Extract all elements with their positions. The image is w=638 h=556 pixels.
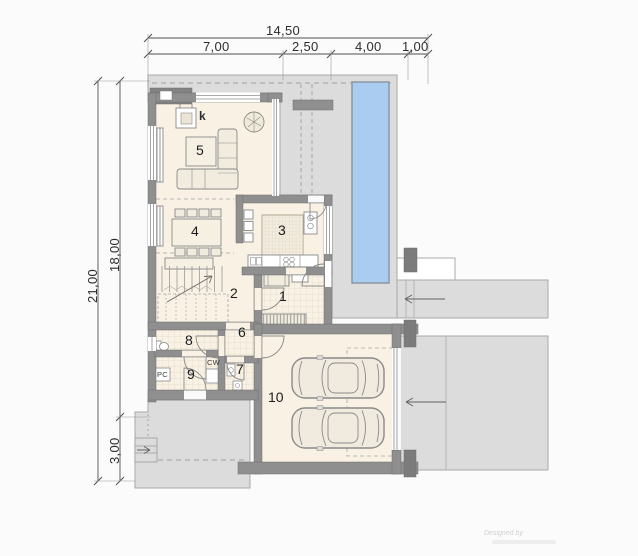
floor-plan: 14,50 7,00 2,50 4,00 1,00 21,00 18,00 3,… xyxy=(0,0,638,556)
terrace-steps xyxy=(135,438,157,462)
toilet-icon xyxy=(233,381,242,390)
pool xyxy=(352,82,389,283)
kitchen-counter xyxy=(248,255,318,267)
fireplace-icon xyxy=(176,104,196,128)
room-label-1: 1 xyxy=(279,289,287,303)
car-icon xyxy=(292,356,384,401)
dimension-width-seg2: 2,50 xyxy=(292,40,319,53)
water-heater-label: CW xyxy=(207,359,220,367)
room-label-2: 2 xyxy=(230,286,238,300)
sideboard xyxy=(165,258,213,269)
dimension-height-upper: 18,00 xyxy=(108,238,121,272)
terrace-planter-wall xyxy=(293,100,333,110)
dimension-width-seg4: 1,00 xyxy=(402,40,429,53)
watermark-credit: Designed by xyxy=(484,530,523,537)
watermark-logo xyxy=(492,540,556,544)
garage-pillar xyxy=(404,320,416,347)
car-icon xyxy=(292,406,384,451)
garage-pillar xyxy=(404,450,416,477)
wall-cabinets xyxy=(244,210,253,242)
entry-pillar xyxy=(404,248,417,272)
radiator-icon xyxy=(157,128,163,182)
garage-door-opening xyxy=(392,348,401,450)
fireplace-label: k xyxy=(199,110,206,122)
radiator-icon xyxy=(157,206,163,246)
front-walkway xyxy=(397,258,548,318)
dimension-height-lower: 3,00 xyxy=(108,437,121,464)
dimension-width-seg3: 4,00 xyxy=(355,40,382,53)
room-label-9: 9 xyxy=(187,367,195,381)
room-label-6: 6 xyxy=(238,325,246,339)
fridge-icon xyxy=(304,212,317,234)
driveway xyxy=(398,336,548,470)
plant-icon xyxy=(244,112,264,132)
dimension-width-seg1: 7,00 xyxy=(203,40,230,53)
dimension-width-total: 14,50 xyxy=(266,24,300,37)
room-label-8: 8 xyxy=(185,333,193,347)
dimension-height-total: 21,00 xyxy=(86,269,99,303)
room-label-3: 3 xyxy=(278,223,286,237)
room-label-7: 7 xyxy=(236,362,244,376)
boiler-label: PC xyxy=(157,371,168,379)
room-label-4: 4 xyxy=(191,224,199,238)
room-label-5: 5 xyxy=(196,143,204,157)
room-label-10: 10 xyxy=(268,390,284,404)
